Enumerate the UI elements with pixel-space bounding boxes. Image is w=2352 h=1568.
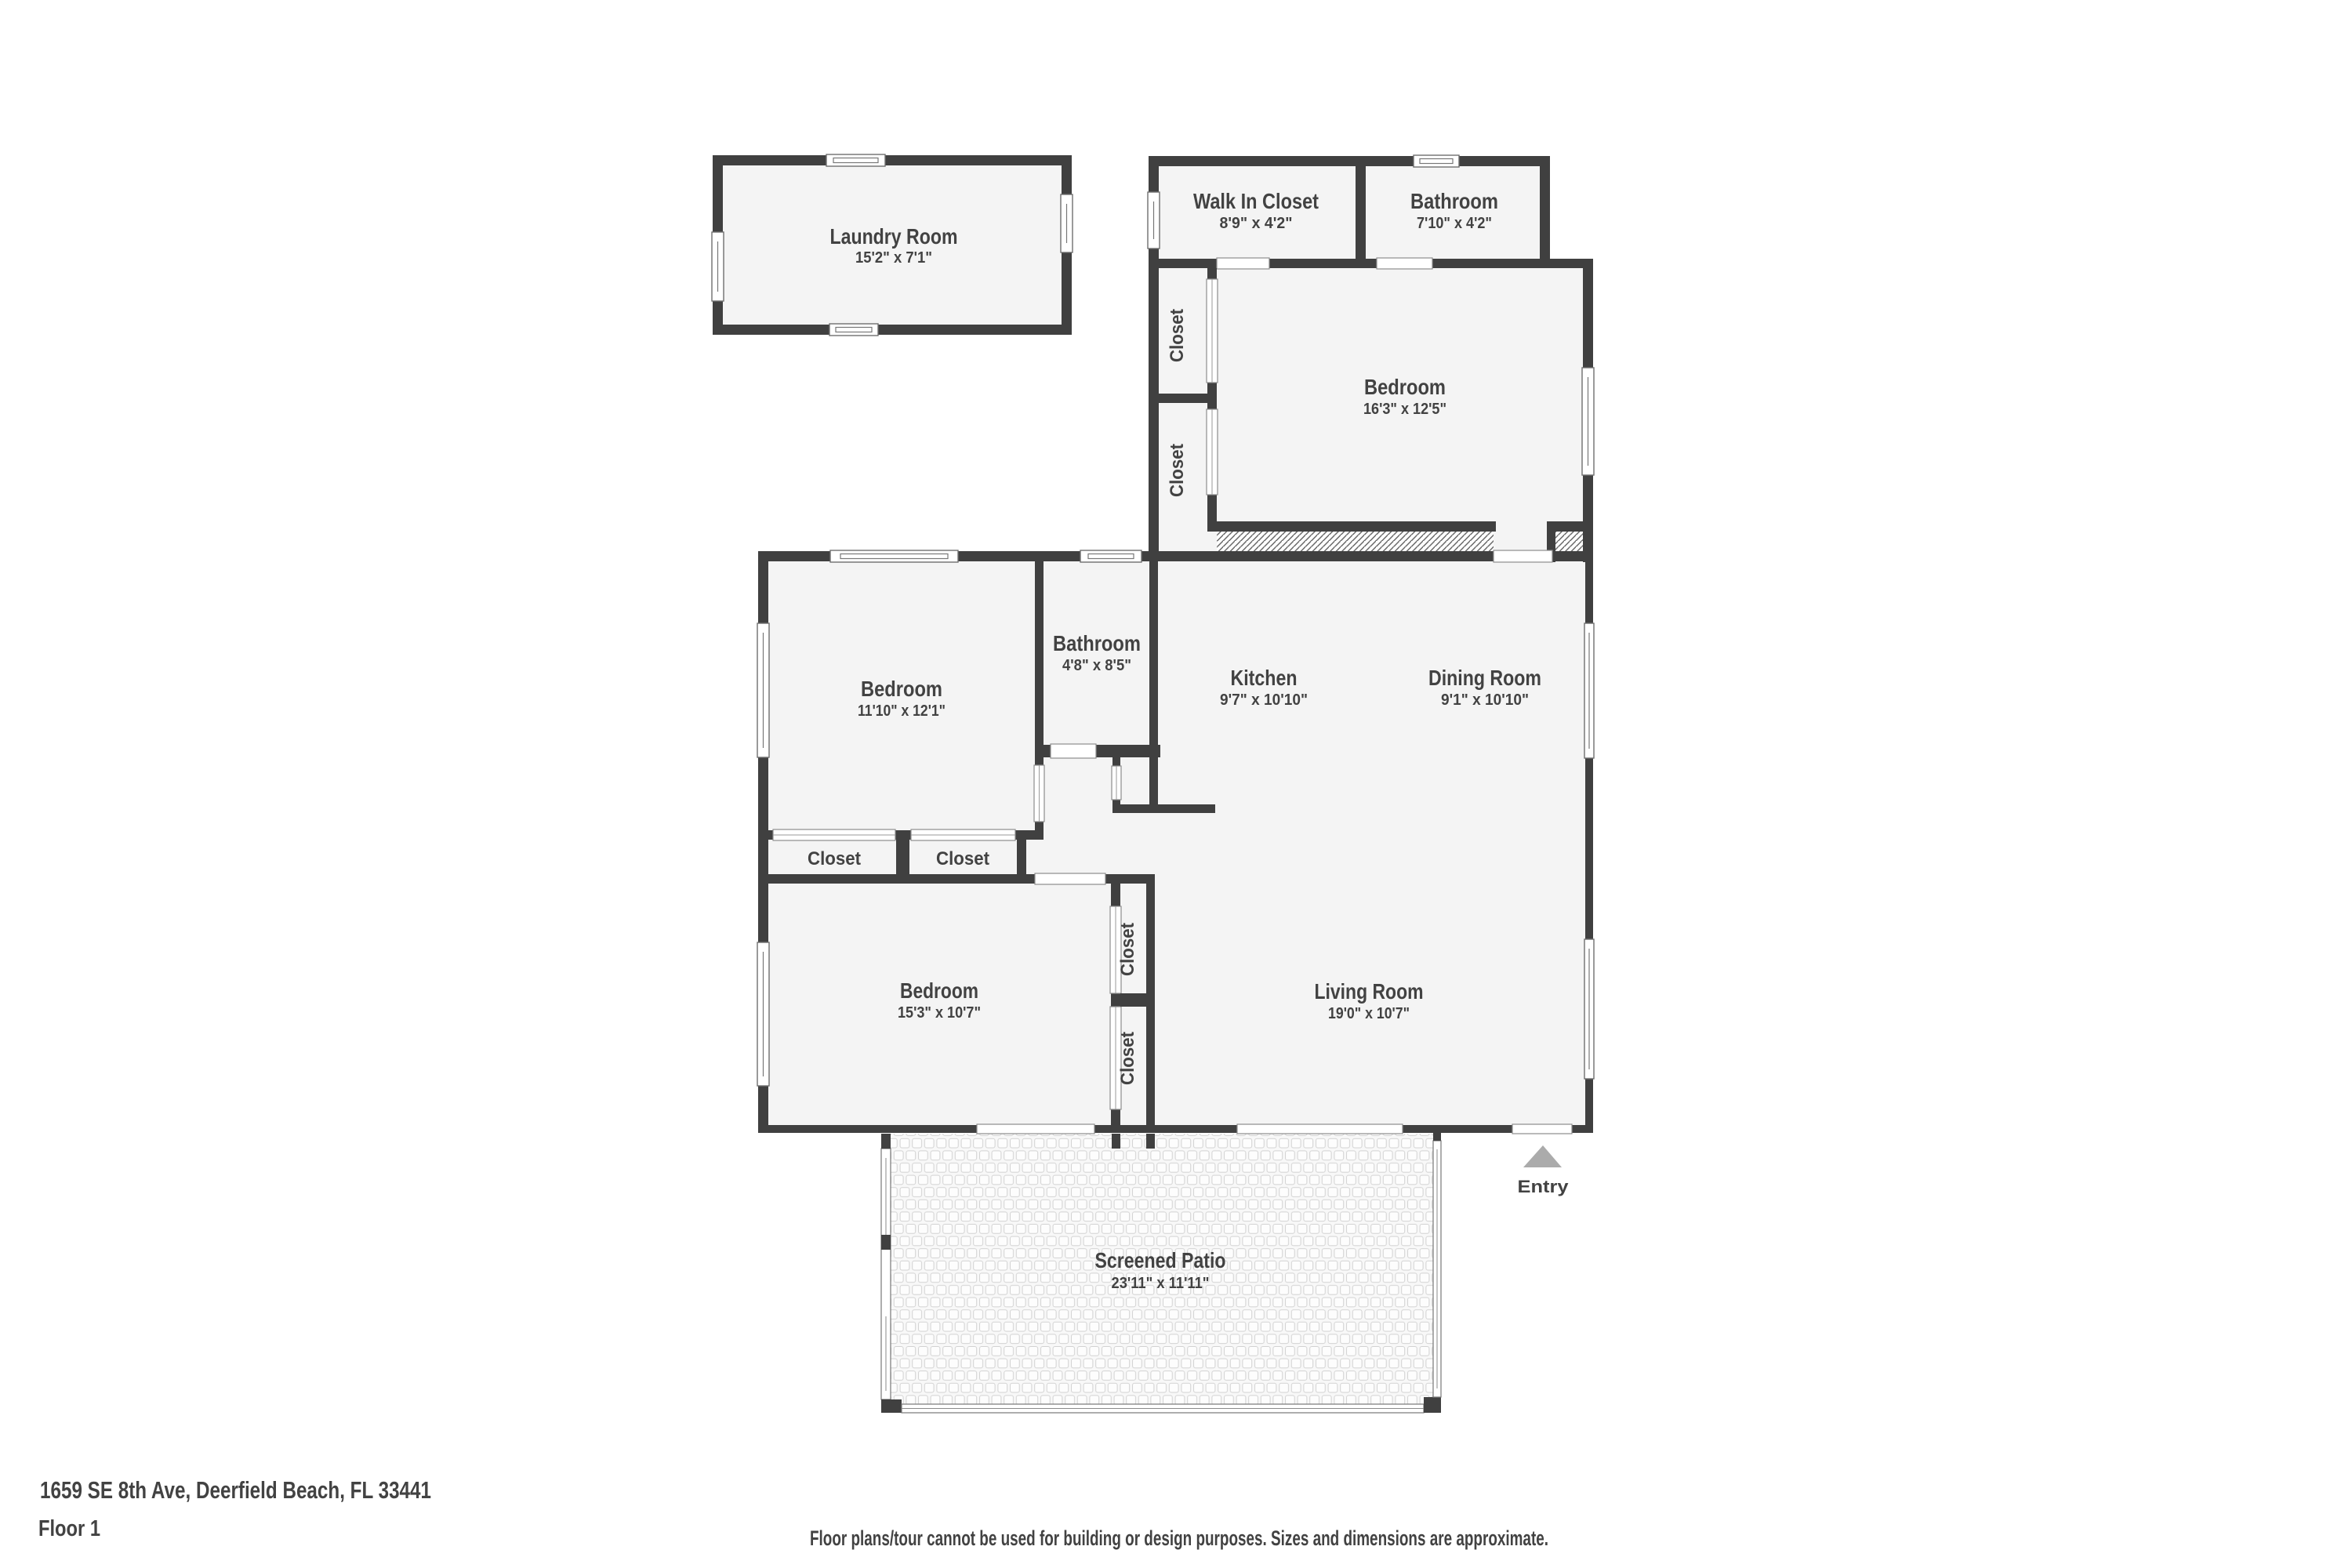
svg-text:Bathroom: Bathroom bbox=[1053, 631, 1141, 655]
svg-text:7'10" x 4'2": 7'10" x 4'2" bbox=[1417, 214, 1492, 232]
svg-text:1659 SE 8th Ave, Deerfield Bea: 1659 SE 8th Ave, Deerfield Beach, FL 334… bbox=[40, 1476, 431, 1504]
svg-text:23'11" x 11'11": 23'11" x 11'11" bbox=[1112, 1274, 1210, 1292]
svg-text:Bedroom: Bedroom bbox=[861, 677, 942, 701]
svg-text:Closet: Closet bbox=[1117, 923, 1138, 976]
svg-text:Closet: Closet bbox=[936, 848, 989, 869]
svg-text:Floor 1: Floor 1 bbox=[38, 1516, 100, 1541]
svg-text:9'1" x 10'10": 9'1" x 10'10" bbox=[1441, 691, 1529, 709]
svg-text:19'0" x 10'7": 19'0" x 10'7" bbox=[1328, 1004, 1410, 1022]
svg-text:Floor plans/tour cannot be use: Floor plans/tour cannot be used for buil… bbox=[810, 1526, 1548, 1550]
svg-text:9'7" x 10'10": 9'7" x 10'10" bbox=[1220, 691, 1308, 709]
svg-text:Kitchen: Kitchen bbox=[1231, 666, 1298, 690]
svg-text:Dining Room: Dining Room bbox=[1428, 666, 1541, 690]
svg-text:Screened Patio: Screened Patio bbox=[1095, 1248, 1226, 1272]
svg-text:Closet: Closet bbox=[1117, 1032, 1138, 1085]
svg-text:8'9" x 4'2": 8'9" x 4'2" bbox=[1220, 214, 1293, 232]
svg-text:Closet: Closet bbox=[1167, 309, 1188, 362]
svg-text:Bedroom: Bedroom bbox=[1364, 375, 1446, 399]
svg-text:Bedroom: Bedroom bbox=[900, 978, 978, 1003]
svg-text:Laundry Room: Laundry Room bbox=[830, 224, 958, 249]
svg-text:Entry: Entry bbox=[1518, 1177, 1570, 1196]
svg-text:15'3" x 10'7": 15'3" x 10'7" bbox=[898, 1004, 981, 1022]
svg-text:4'8" x 8'5": 4'8" x 8'5" bbox=[1062, 656, 1131, 674]
svg-text:Bathroom: Bathroom bbox=[1410, 189, 1498, 213]
svg-text:16'3" x 12'5": 16'3" x 12'5" bbox=[1363, 400, 1446, 418]
svg-text:Living Room: Living Room bbox=[1315, 979, 1424, 1004]
svg-text:11'10" x 12'1": 11'10" x 12'1" bbox=[858, 702, 946, 720]
svg-text:Closet: Closet bbox=[808, 848, 861, 869]
svg-text:Closet: Closet bbox=[1167, 444, 1188, 497]
svg-text:15'2" x 7'1": 15'2" x 7'1" bbox=[855, 249, 932, 267]
svg-text:Walk In Closet: Walk In Closet bbox=[1193, 189, 1319, 213]
